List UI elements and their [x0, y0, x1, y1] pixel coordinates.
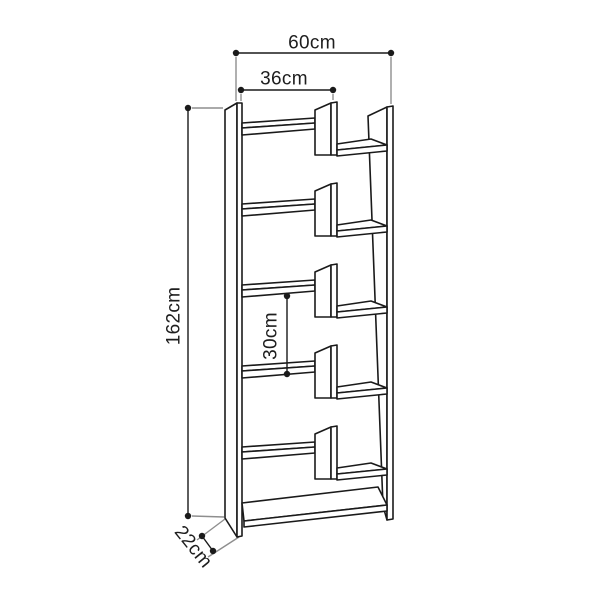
bookcase-dimension-diagram: 60cm 36cm 162cm 30cm 22cm	[0, 0, 600, 600]
divider-side	[315, 346, 331, 398]
dimension-label-inner-width: 36cm	[260, 69, 308, 90]
extension-height-bottom	[192, 516, 224, 517]
dimension-dot	[238, 87, 244, 93]
dimension-dot	[284, 293, 290, 299]
dimension-label-shelf-gap: 30cm	[261, 312, 282, 360]
left-panel-side-face	[225, 103, 237, 537]
left-panel-front-face	[237, 103, 242, 537]
dimension-dot	[185, 513, 191, 519]
bookcase-drawing	[225, 102, 393, 537]
left-panel	[225, 103, 242, 537]
shelf-level-1	[242, 102, 387, 156]
shelf-level-5	[242, 426, 387, 480]
dimension-labels: 60cm 36cm 162cm 30cm 22cm	[164, 33, 336, 573]
divider-side	[315, 103, 331, 155]
dimension-dot	[233, 50, 239, 56]
right-panel-front-face	[387, 106, 393, 520]
diagram-svg: 60cm 36cm 162cm 30cm 22cm	[0, 0, 600, 600]
dimension-dot	[330, 87, 336, 93]
divider-front	[331, 264, 337, 317]
shelf-level-2	[242, 183, 387, 237]
divider-side	[315, 427, 331, 479]
bottom-shelf	[242, 487, 387, 527]
divider-front	[331, 102, 337, 155]
dimension-label-overall-width: 60cm	[288, 33, 336, 54]
dimension-dot	[185, 105, 191, 111]
divider-front	[331, 345, 337, 398]
divider-front	[331, 183, 337, 236]
shelf-level-3	[242, 264, 387, 318]
divider-side	[315, 265, 331, 317]
divider-side	[315, 184, 331, 236]
dimension-dot	[388, 50, 394, 56]
dimension-label-overall-height: 162cm	[164, 287, 185, 346]
divider-front	[331, 426, 337, 479]
dimension-overall-height	[185, 105, 191, 519]
dimension-dot	[284, 371, 290, 377]
